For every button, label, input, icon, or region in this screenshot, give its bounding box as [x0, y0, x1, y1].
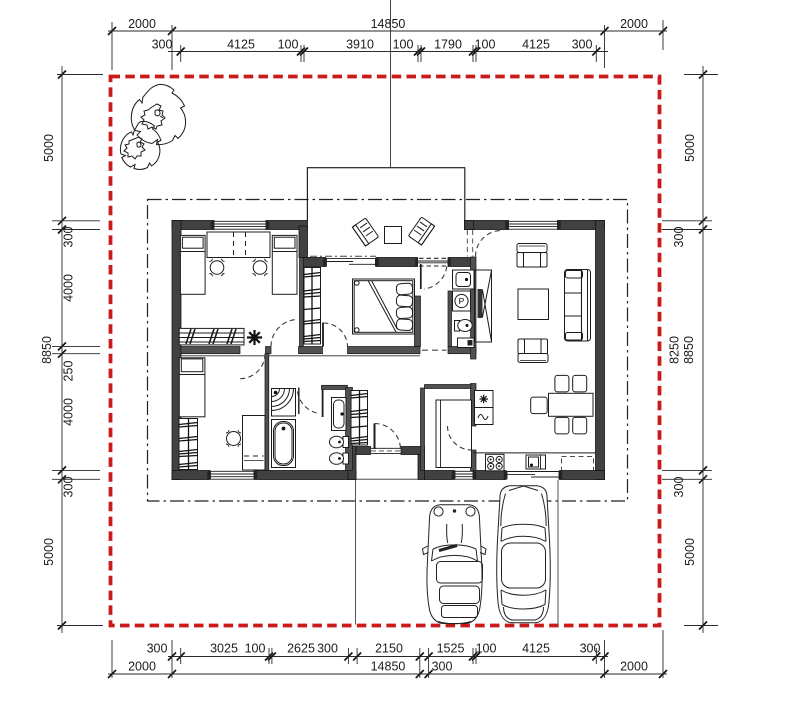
svg-text:1790: 1790	[434, 38, 462, 52]
svg-text:2000: 2000	[128, 17, 156, 31]
svg-text:14850: 14850	[371, 17, 406, 31]
svg-text:3910: 3910	[346, 38, 374, 52]
svg-text:4000: 4000	[62, 398, 76, 426]
svg-text:5000: 5000	[42, 538, 56, 566]
svg-text:2000: 2000	[128, 660, 156, 674]
svg-text:300: 300	[62, 477, 76, 498]
svg-text:300: 300	[572, 38, 593, 52]
svg-text:5000: 5000	[42, 134, 56, 162]
svg-text:300: 300	[317, 642, 338, 656]
svg-text:300: 300	[62, 227, 76, 248]
svg-text:5000: 5000	[683, 134, 697, 162]
svg-text:300: 300	[672, 477, 686, 498]
svg-text:300: 300	[152, 38, 173, 52]
svg-text:300: 300	[147, 642, 168, 656]
svg-text:8250: 8250	[668, 336, 682, 364]
svg-text:100: 100	[393, 38, 414, 52]
svg-text:250: 250	[62, 361, 76, 382]
svg-text:3025: 3025	[210, 642, 238, 656]
svg-text:2150: 2150	[375, 642, 403, 656]
svg-text:5000: 5000	[683, 538, 697, 566]
svg-text:14850: 14850	[371, 660, 406, 674]
svg-text:4000: 4000	[62, 274, 76, 302]
svg-text:100: 100	[278, 38, 299, 52]
svg-text:100: 100	[476, 642, 497, 656]
svg-text:4125: 4125	[522, 642, 550, 656]
svg-text:300: 300	[672, 227, 686, 248]
svg-text:2000: 2000	[620, 660, 648, 674]
svg-text:8850: 8850	[40, 336, 54, 364]
svg-text:2625: 2625	[287, 642, 315, 656]
svg-text:100: 100	[475, 38, 496, 52]
svg-text:4125: 4125	[522, 38, 550, 52]
svg-text:100: 100	[245, 642, 266, 656]
svg-text:2000: 2000	[620, 17, 648, 31]
svg-text:8850: 8850	[682, 336, 696, 364]
svg-text:300: 300	[580, 642, 601, 656]
svg-text:4125: 4125	[227, 38, 255, 52]
svg-text:1525: 1525	[437, 642, 465, 656]
svg-text:P: P	[459, 296, 465, 306]
svg-text:300: 300	[432, 660, 453, 674]
